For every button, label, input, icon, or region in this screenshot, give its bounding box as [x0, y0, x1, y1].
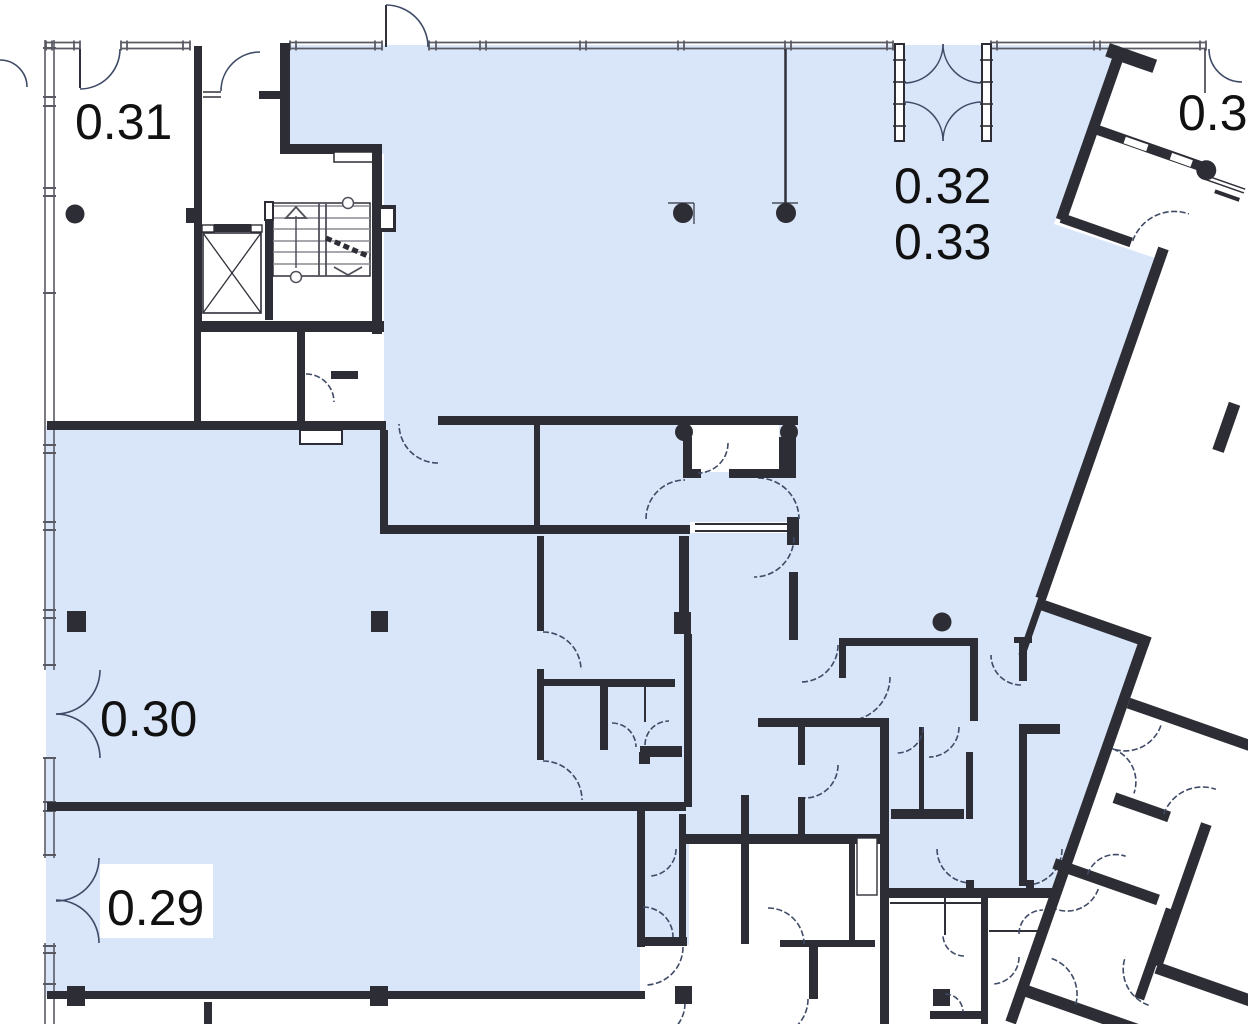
- svg-text:0.33: 0.33: [894, 214, 991, 270]
- svg-text:0.30: 0.30: [100, 691, 197, 747]
- svg-text:0.31: 0.31: [75, 94, 172, 150]
- svg-text:0.29: 0.29: [107, 880, 204, 936]
- svg-text:0.32: 0.32: [894, 158, 991, 214]
- svg-text:0.34: 0.34: [1178, 85, 1248, 141]
